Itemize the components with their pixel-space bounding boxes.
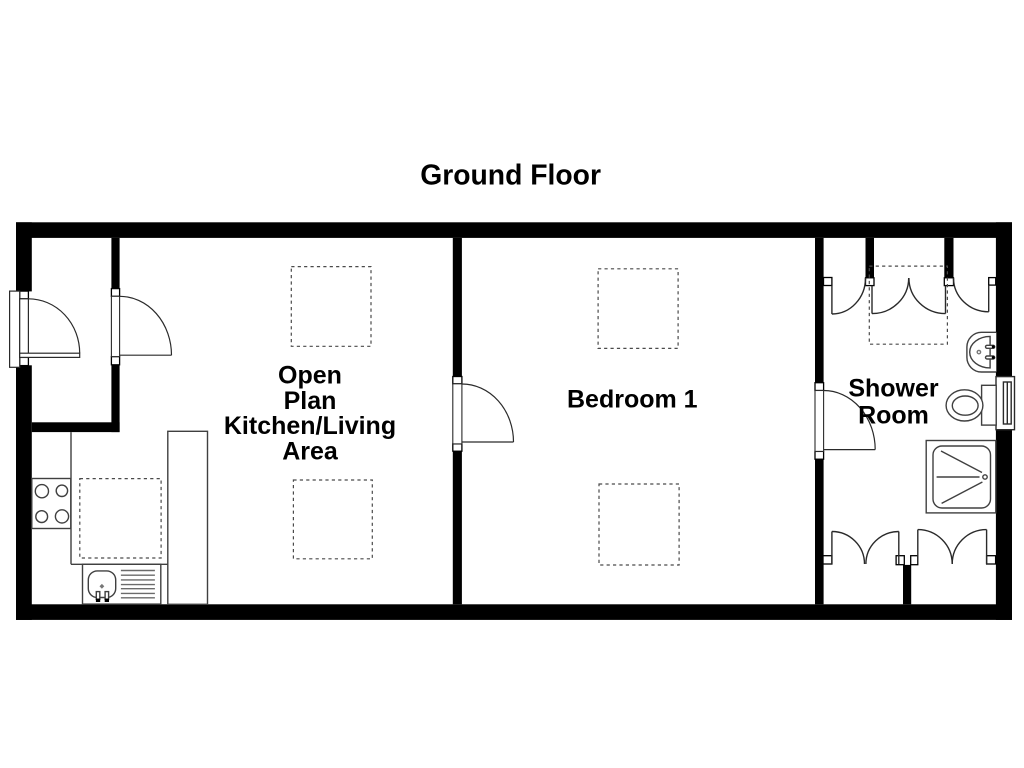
svg-text:Area: Area — [282, 438, 339, 466]
svg-text:Shower: Shower — [848, 375, 939, 403]
svg-text:Open: Open — [278, 361, 342, 389]
svg-text:Kitchen/Living: Kitchen/Living — [224, 412, 396, 440]
svg-text:Plan: Plan — [284, 387, 337, 415]
svg-text:Bedroom 1: Bedroom 1 — [567, 385, 698, 413]
svg-text:Ground Floor: Ground Floor — [420, 159, 601, 191]
svg-text:Room: Room — [858, 401, 929, 429]
